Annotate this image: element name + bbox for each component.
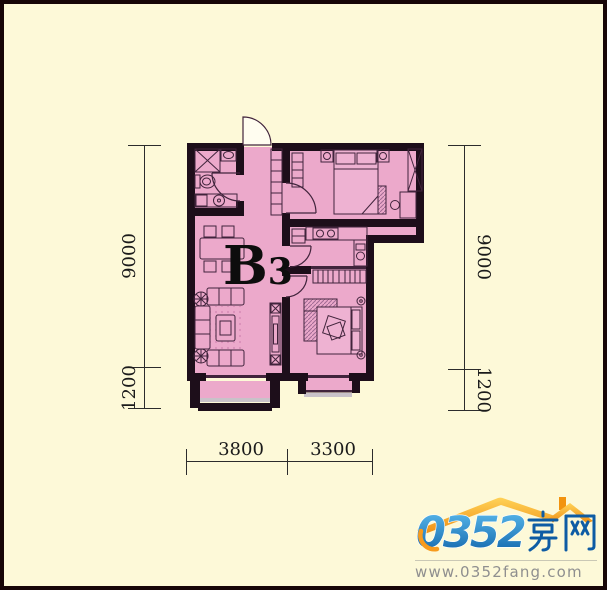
site-url: www.0352fang.com [415,560,597,581]
site-logo-art: 0352 [415,492,597,554]
dim-label-right-9000: 9000 [473,234,494,280]
floor-plan-page: 9000 1200 9000 1200 3800 3300 B3 [0,0,607,590]
plant-icon [194,292,208,306]
living-room-balcony [200,381,270,399]
plant-icon [194,349,208,363]
unit-label-letter: B [223,235,268,297]
balcony-door-right [308,375,349,378]
double-bed-icon [317,307,362,354]
dim-label-left-9000: 9000 [119,233,140,279]
dim-label-left-1200: 1200 [119,365,140,411]
dim-label-right-1200: 1200 [473,367,494,413]
unit-label: B3 [223,240,293,293]
bedroom-balcony [304,377,352,391]
wardrobe-icon [304,311,317,341]
dim-label-bottom-3300: 3300 [310,439,356,460]
site-logo: 0352 [415,492,597,581]
double-bed-icon [334,150,378,214]
coffee-table-icon [216,315,235,341]
entry-door-icon [243,117,271,145]
unit-label-number: 3 [268,251,293,293]
balcony-door-left [206,375,266,378]
dim-label-bottom-3800: 3800 [218,439,264,460]
